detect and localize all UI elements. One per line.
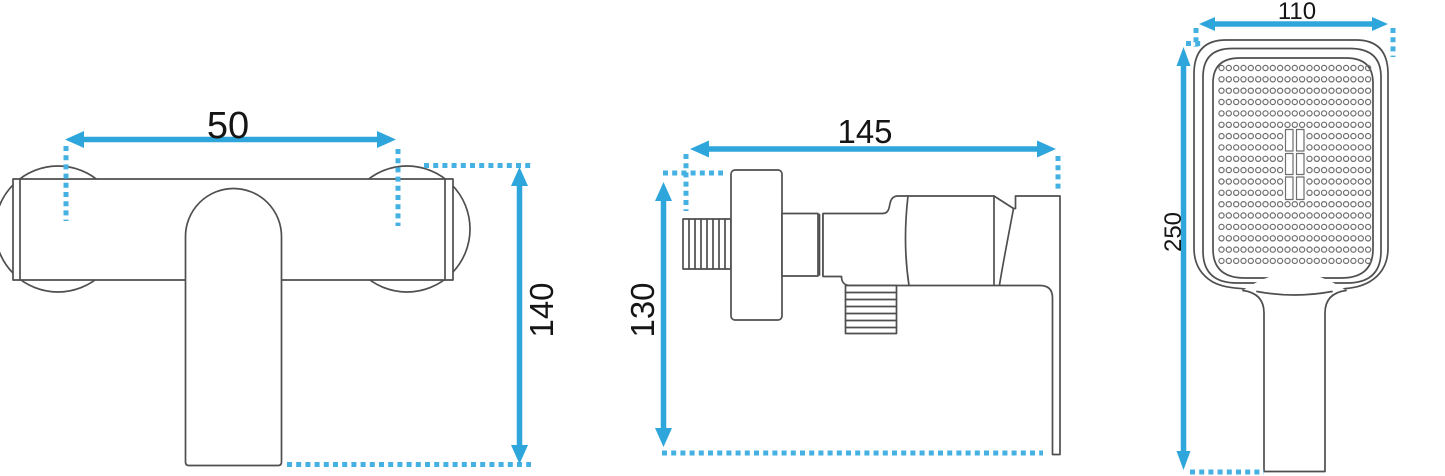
shower-handle-mask xyxy=(1242,273,1347,472)
side-width-label: 145 xyxy=(837,113,892,150)
thread-rib-lines xyxy=(689,219,725,269)
arrowhead-left xyxy=(65,131,84,148)
arrowhead-down xyxy=(511,445,528,464)
arrowhead-left xyxy=(690,141,709,158)
arrowhead-down xyxy=(655,428,672,447)
arrowhead-up xyxy=(511,167,528,186)
front-width-label: 50 xyxy=(207,105,249,147)
front-height-label: 140 xyxy=(523,282,560,337)
front-view xyxy=(0,166,470,466)
wall-flange-plate xyxy=(731,170,782,320)
arrowhead-right xyxy=(1037,141,1056,158)
dimension-drawing-canvas: 50 140 145 130 110 250 xyxy=(0,0,1445,476)
arrowhead-down xyxy=(1177,451,1191,470)
shower-height-label: 250 xyxy=(1160,212,1187,252)
arrowhead-right xyxy=(377,131,396,148)
arrowhead-left xyxy=(1199,17,1215,31)
arrowhead-up xyxy=(655,182,672,201)
side-view xyxy=(683,170,1060,455)
hand-shower-view xyxy=(1194,40,1388,472)
side-height-label: 130 xyxy=(624,282,661,337)
arrowhead-up xyxy=(1177,47,1191,66)
mixer-handle-front xyxy=(186,189,282,466)
arrowhead-right xyxy=(1372,17,1388,31)
faucet-technical-drawing: 50 140 145 130 110 250 xyxy=(0,0,1445,476)
body-collar xyxy=(782,214,818,277)
shower-width-label: 110 xyxy=(1278,0,1316,25)
